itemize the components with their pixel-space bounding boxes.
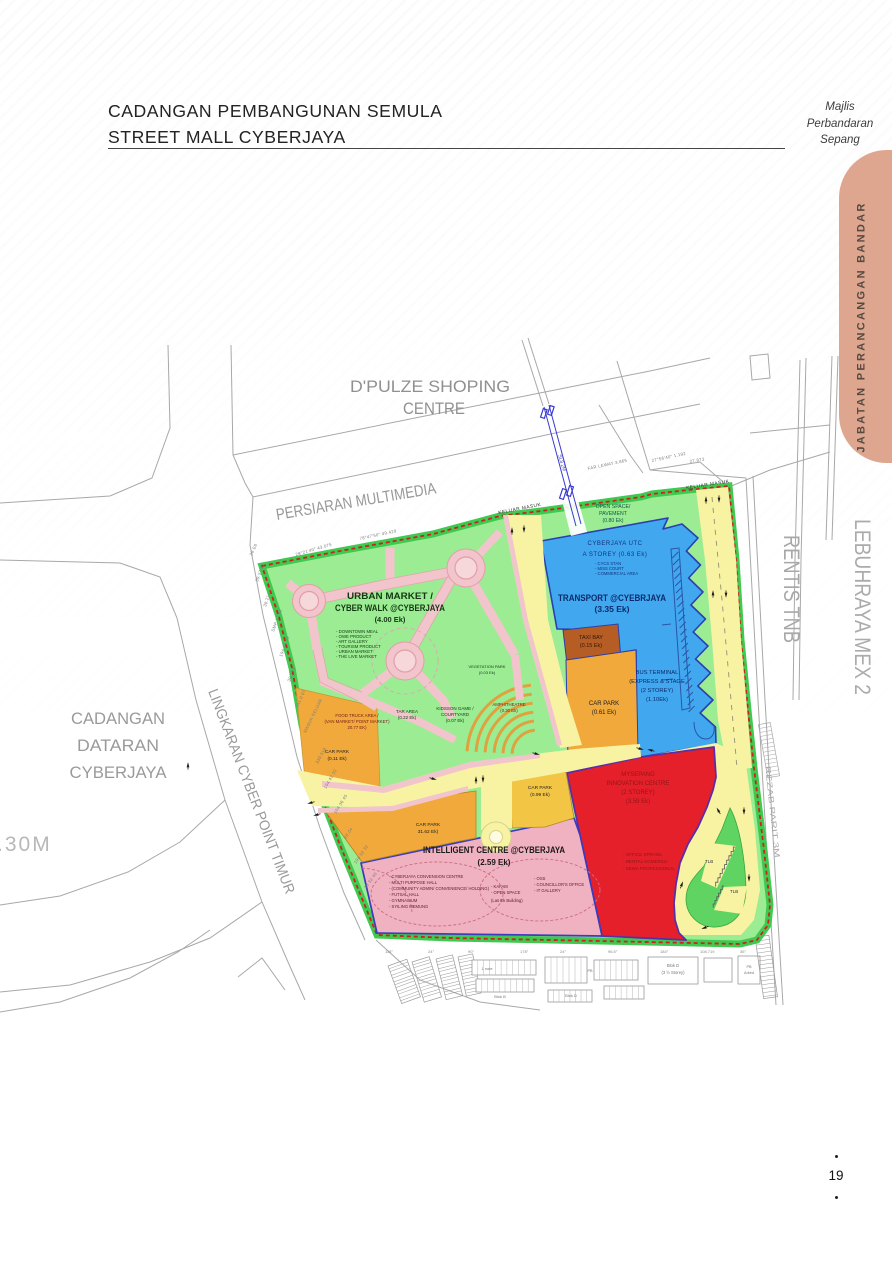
- svg-text:A STOREY (0.63 Ek): A STOREY (0.63 Ek): [583, 552, 648, 558]
- svg-text:(0.07 Ek): (0.07 Ek): [446, 718, 465, 723]
- svg-text:(0.80 Ek): (0.80 Ek): [602, 518, 623, 524]
- svg-text:31.62 Ek): 31.62 Ek): [418, 829, 439, 835]
- svg-text:MYSEPANG: MYSEPANG: [621, 772, 655, 778]
- svg-text:- RENTAL KOMERSIA: - RENTAL KOMERSIA: [623, 859, 668, 864]
- svg-text:KIDSSON GAME /: KIDSSON GAME /: [436, 706, 474, 711]
- svg-text:LINGKARAN CYBER POINT TIMUR: LINGKARAN CYBER POINT TIMUR: [204, 687, 297, 896]
- svg-text:27°56'40" 1.192: 27°56'40" 1.192: [651, 451, 686, 463]
- svg-text:TAR AREA: TAR AREA: [396, 709, 418, 714]
- svg-text:(2.59 Ek): (2.59 Ek): [478, 858, 511, 867]
- svg-text:96.5°: 96.5°: [608, 949, 618, 954]
- svg-text:- IT GALLERY: - IT GALLERY: [534, 888, 561, 893]
- svg-text:D'PULZE SHOPING: D'PULZE SHOPING: [350, 377, 510, 396]
- svg-text:(2 STOREY): (2 STOREY): [641, 688, 673, 694]
- svg-text:LEBUHRAYA MEX 2: LEBUHRAYA MEX 2: [850, 519, 875, 695]
- svg-text:- OSS: - OSS: [534, 876, 546, 881]
- svg-text:- COUNCILLOR'S OFFICE: - COUNCILLOR'S OFFICE: [534, 882, 584, 887]
- svg-text:CYBERJAYA: CYBERJAYA: [70, 763, 168, 782]
- svg-text:PAVEMENT: PAVEMENT: [599, 511, 628, 517]
- svg-text:(0.11 Ek): (0.11 Ek): [327, 756, 347, 762]
- svg-text:(0.99 Ek): (0.99 Ek): [530, 792, 550, 798]
- svg-text:(1.10Ek): (1.10Ek): [646, 697, 668, 703]
- svg-text:(VAN MARKET/ POINT MARKET): (VAN MARKET/ POINT MARKET): [324, 719, 390, 724]
- svg-text:TLB: TLB: [730, 889, 738, 894]
- svg-text:(0.61 Ek): (0.61 Ek): [592, 710, 616, 716]
- svg-text:DATARAN: DATARAN: [77, 736, 159, 755]
- svg-text:CYBER WALK @CYBERJAYA: CYBER WALK @CYBERJAYA: [335, 603, 445, 613]
- svg-text:Arked: Arked: [744, 971, 754, 975]
- svg-text:INNOVATION CENTRE: INNOVATION CENTRE: [607, 781, 670, 787]
- svg-text:PB: PB: [587, 969, 593, 973]
- svg-text:CADANGAN: CADANGAN: [71, 709, 165, 728]
- svg-text:90°: 90°: [468, 949, 474, 954]
- svg-text:(0.15 Ek): (0.15 Ek): [580, 643, 602, 649]
- svg-text:(3.59 Ek): (3.59 Ek): [626, 799, 650, 805]
- svg-text:Blok D: Blok D: [565, 993, 577, 998]
- svg-text:VEGETATION PARK: VEGETATION PARK: [469, 664, 506, 669]
- svg-text:RENTIS TNB: RENTIS TNB: [779, 535, 804, 643]
- svg-text:(4.00 Ek): (4.00 Ek): [375, 615, 406, 624]
- svg-text:FOOD TRUCK AREA /: FOOD TRUCK AREA /: [335, 713, 379, 718]
- svg-text:CAR PARK: CAR PARK: [589, 701, 619, 707]
- svg-text:- SYILING MEMUNG: - SYILING MEMUNG: [389, 904, 428, 909]
- svg-text:118°: 118°: [385, 949, 393, 954]
- svg-text:OPEN SPACE/: OPEN SPACE/: [596, 504, 631, 510]
- svg-text:36°: 36°: [740, 949, 746, 954]
- svg-text:CYBERJAYA UTC: CYBERJAYA UTC: [588, 541, 643, 547]
- svg-text:184°: 184°: [660, 949, 669, 954]
- svg-text:- KAFAM: - KAFAM: [491, 884, 508, 889]
- svg-text:AMPHITHEATRE: AMPHITHEATRE: [492, 702, 525, 707]
- svg-text:URBAN MARKET /: URBAN MARKET /: [347, 591, 434, 601]
- svg-text:TRANSPORT @CYEBRJAYA: TRANSPORT @CYEBRJAYA: [558, 593, 666, 604]
- svg-text:(0.22 Ek): (0.22 Ek): [398, 715, 417, 720]
- svg-text:(0.30 Ek): (0.30 Ek): [500, 708, 518, 713]
- svg-text:178°: 178°: [520, 949, 529, 954]
- svg-text:- MULTI PURPOSE HALL: - MULTI PURPOSE HALL: [389, 880, 438, 885]
- svg-text:- OPEN SPACE: - OPEN SPACE: [491, 890, 521, 895]
- svg-text:TAXI BAY: TAXI BAY: [579, 635, 603, 641]
- svg-text:(EXPRESS & STAGE: (EXPRESS & STAGE: [629, 679, 685, 685]
- svg-text:- OFFICE SPRAWL: - OFFICE SPRAWL: [623, 852, 663, 857]
- svg-text:(Las Ek Building): (Las Ek Building): [491, 898, 523, 903]
- svg-text:Blok D: Blok D: [667, 963, 679, 968]
- svg-text:SL8.2M: SL8.2M: [556, 454, 567, 472]
- svg-text:Blok B: Blok B: [494, 994, 506, 999]
- svg-text:INTELLIGENT CENTRE @CYBERJAYA: INTELLIGENT CENTRE @CYBERJAYA: [423, 845, 565, 856]
- svg-text:(2 STOREY): (2 STOREY): [621, 790, 655, 796]
- svg-text:1 note: 1 note: [481, 966, 493, 971]
- svg-text:CENTRE: CENTRE: [403, 399, 465, 418]
- svg-text:(3.35 Ek): (3.35 Ek): [595, 604, 630, 614]
- svg-text:20.77 EK): 20.77 EK): [347, 725, 367, 730]
- svg-text:24°: 24°: [560, 949, 566, 954]
- svg-text:CAR PARK: CAR PARK: [528, 785, 553, 791]
- svg-text:- SEWA PROFESSIONAL: - SEWA PROFESSIONAL: [623, 866, 675, 871]
- svg-text:24°: 24°: [428, 949, 434, 954]
- svg-text:(3 ½ Storey): (3 ½ Storey): [661, 970, 685, 975]
- svg-text:CAR PARK: CAR PARK: [416, 822, 441, 828]
- svg-text:TLB: TLB: [705, 859, 713, 864]
- svg-text:- FUTSAL HALL: - FUTSAL HALL: [389, 892, 420, 897]
- svg-text:PB: PB: [746, 965, 752, 969]
- svg-text:- COMMERCIAL AREA: - COMMERCIAL AREA: [595, 571, 638, 576]
- svg-text:108.719: 108.719: [700, 949, 715, 954]
- svg-text:- (COMMUNITY ADMIN/ CONVENIE: - (COMMUNITY ADMIN/ CONVENIENCE/ HOLDING…: [389, 886, 490, 891]
- svg-text:- CYBERJAYA CONVENSION CENTR: - CYBERJAYA CONVENSION CENTRE: [389, 874, 464, 879]
- svg-text:COURTYARD: COURTYARD: [441, 712, 470, 717]
- svg-text:CAR PARK: CAR PARK: [325, 749, 350, 755]
- svg-text:FAR LEWAT 3.865: FAR LEWAT 3.865: [587, 458, 628, 471]
- svg-text:(0.03 Ek): (0.03 Ek): [479, 670, 496, 675]
- svg-text:- GYMNASIUM: - GYMNASIUM: [389, 898, 418, 903]
- svg-text:.30M: .30M: [0, 833, 52, 856]
- svg-text:- THE LIVE MARKET: - THE LIVE MARKET: [336, 654, 377, 659]
- svg-text:BUS TERMINAL: BUS TERMINAL: [636, 670, 680, 676]
